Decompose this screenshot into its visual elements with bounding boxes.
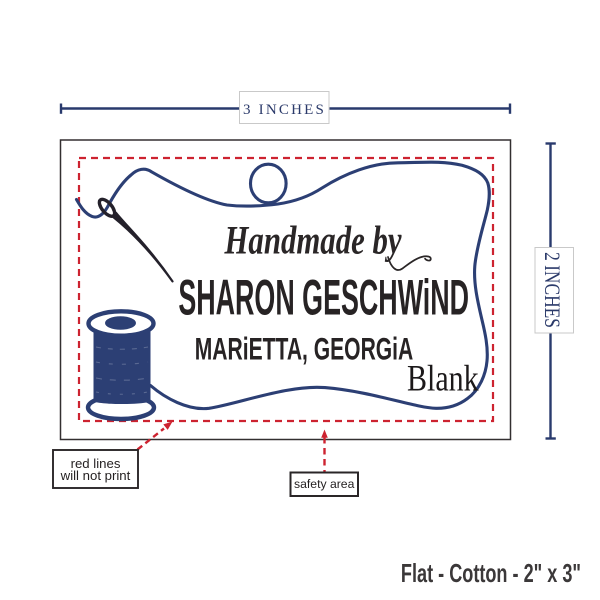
svg-text:safety area: safety area: [294, 477, 355, 491]
svg-text:will not print: will not print: [60, 468, 131, 483]
svg-text:2 INCHES: 2 INCHES: [539, 252, 563, 328]
svg-text:3 INCHES: 3 INCHES: [243, 102, 326, 118]
svg-text:SHARON GESCHWiND: SHARON GESCHWiND: [178, 268, 469, 325]
svg-text:Handmade by: Handmade by: [224, 217, 402, 262]
svg-text:Flat - Cotton - 2" x 3": Flat - Cotton - 2" x 3": [401, 559, 581, 588]
svg-text:Blank: Blank: [407, 358, 479, 399]
svg-text:MARiETTA, GEORGiA: MARiETTA, GEORGiA: [195, 331, 414, 366]
